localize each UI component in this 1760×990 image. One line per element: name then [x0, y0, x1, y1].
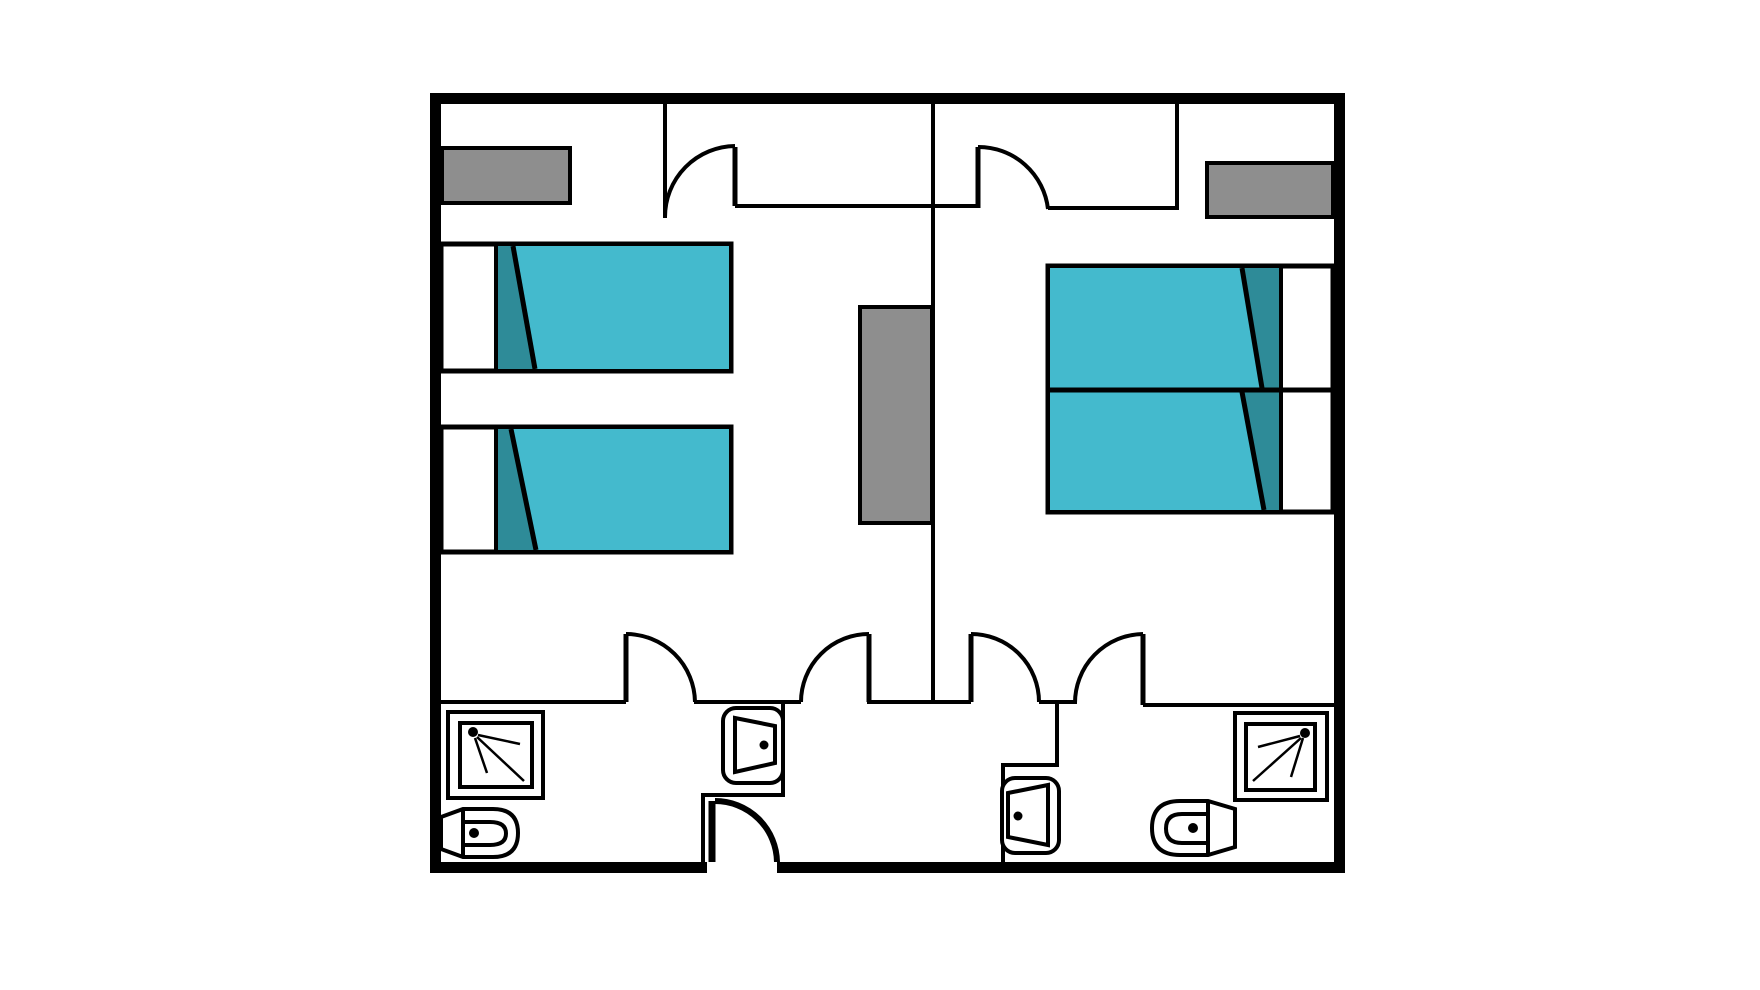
bed-mattress — [513, 246, 729, 369]
outer-wall-bottom-right — [777, 862, 1345, 873]
left-bathroom-door — [626, 634, 695, 702]
right-shower — [1235, 713, 1327, 800]
outer-wall-bottom-left — [430, 862, 707, 873]
sink-basin — [735, 718, 775, 772]
shower-head-icon — [1300, 728, 1310, 738]
right-bathroom — [1002, 713, 1327, 855]
left-room — [441, 148, 731, 552]
left-toilet — [441, 809, 518, 857]
left-room-hall-door — [801, 634, 869, 702]
left-bathroom — [441, 708, 783, 857]
outer-wall-right — [1334, 93, 1345, 873]
toilet-seat — [1166, 814, 1208, 843]
right-bath-niche-wall-h — [1001, 763, 1059, 767]
entry-nook-side-wall — [701, 793, 705, 863]
sink-faucet-dot — [1014, 812, 1023, 821]
right-room — [1048, 163, 1333, 512]
bed-mattress-lower — [1050, 392, 1264, 510]
door-swing-arc — [971, 634, 1039, 702]
right-room-dresser — [1207, 163, 1333, 217]
left-room-top-door — [665, 146, 735, 217]
right-vestibule-wall — [1175, 104, 1179, 210]
door-swing-arc — [715, 801, 777, 862]
right-toilet — [1152, 801, 1235, 855]
right-sink — [1002, 778, 1059, 853]
entrance-door — [712, 801, 777, 862]
right-room-hall-door — [971, 634, 1039, 702]
right-room-top-door — [978, 147, 1048, 209]
door-swing-arc — [801, 634, 869, 702]
vestibule-wall-left-segment — [735, 204, 978, 208]
right-room-double-bed — [1048, 266, 1333, 512]
door-swing-arc — [665, 146, 735, 217]
center-cabinet — [860, 307, 932, 523]
left-shower — [448, 712, 543, 798]
floor-plan-page — [0, 0, 1760, 990]
bathroom-wall-segment-1 — [441, 700, 626, 704]
bed-mattress — [511, 429, 729, 550]
left-sink — [723, 708, 783, 783]
bed-mattress-upper — [1050, 268, 1262, 388]
entry-nook-top-wall — [701, 793, 785, 797]
floor-plan-svg — [0, 0, 1760, 990]
door-swing-arc — [1075, 634, 1143, 704]
left-room-bed-2 — [441, 427, 731, 552]
vestibule-wall-right-segment — [1048, 206, 1177, 210]
sink-faucet-dot — [760, 741, 769, 750]
toilet-flush-dot — [1188, 823, 1198, 833]
toilet-flush-dot — [469, 828, 479, 838]
left-room-dresser — [442, 148, 570, 203]
bathroom-wall-segment-3 — [867, 700, 971, 704]
outer-wall-top — [430, 93, 1345, 104]
left-room-bed-1 — [441, 244, 731, 371]
door-swing-arc — [978, 147, 1048, 209]
door-swing-arc — [626, 634, 695, 702]
bathroom-wall-segment-4 — [1143, 703, 1334, 707]
right-bath-niche-wall-v — [1055, 700, 1059, 767]
shower-head-icon — [468, 727, 478, 737]
right-bathroom-door — [1075, 634, 1143, 705]
